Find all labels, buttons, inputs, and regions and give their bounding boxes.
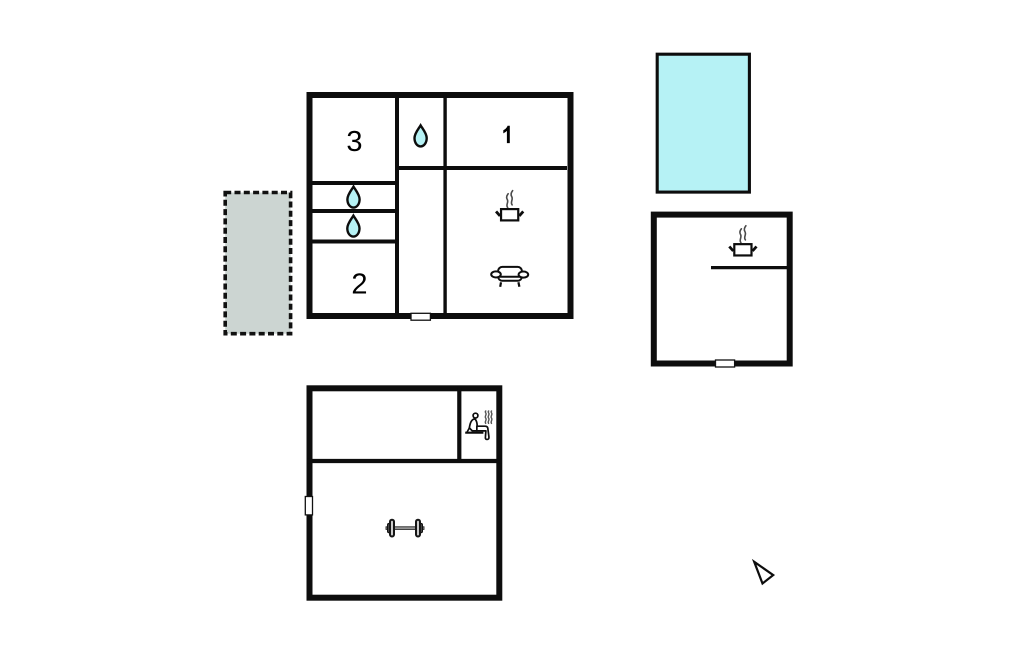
svg-text:3: 3 bbox=[346, 126, 362, 158]
svg-text:2: 2 bbox=[351, 269, 367, 301]
